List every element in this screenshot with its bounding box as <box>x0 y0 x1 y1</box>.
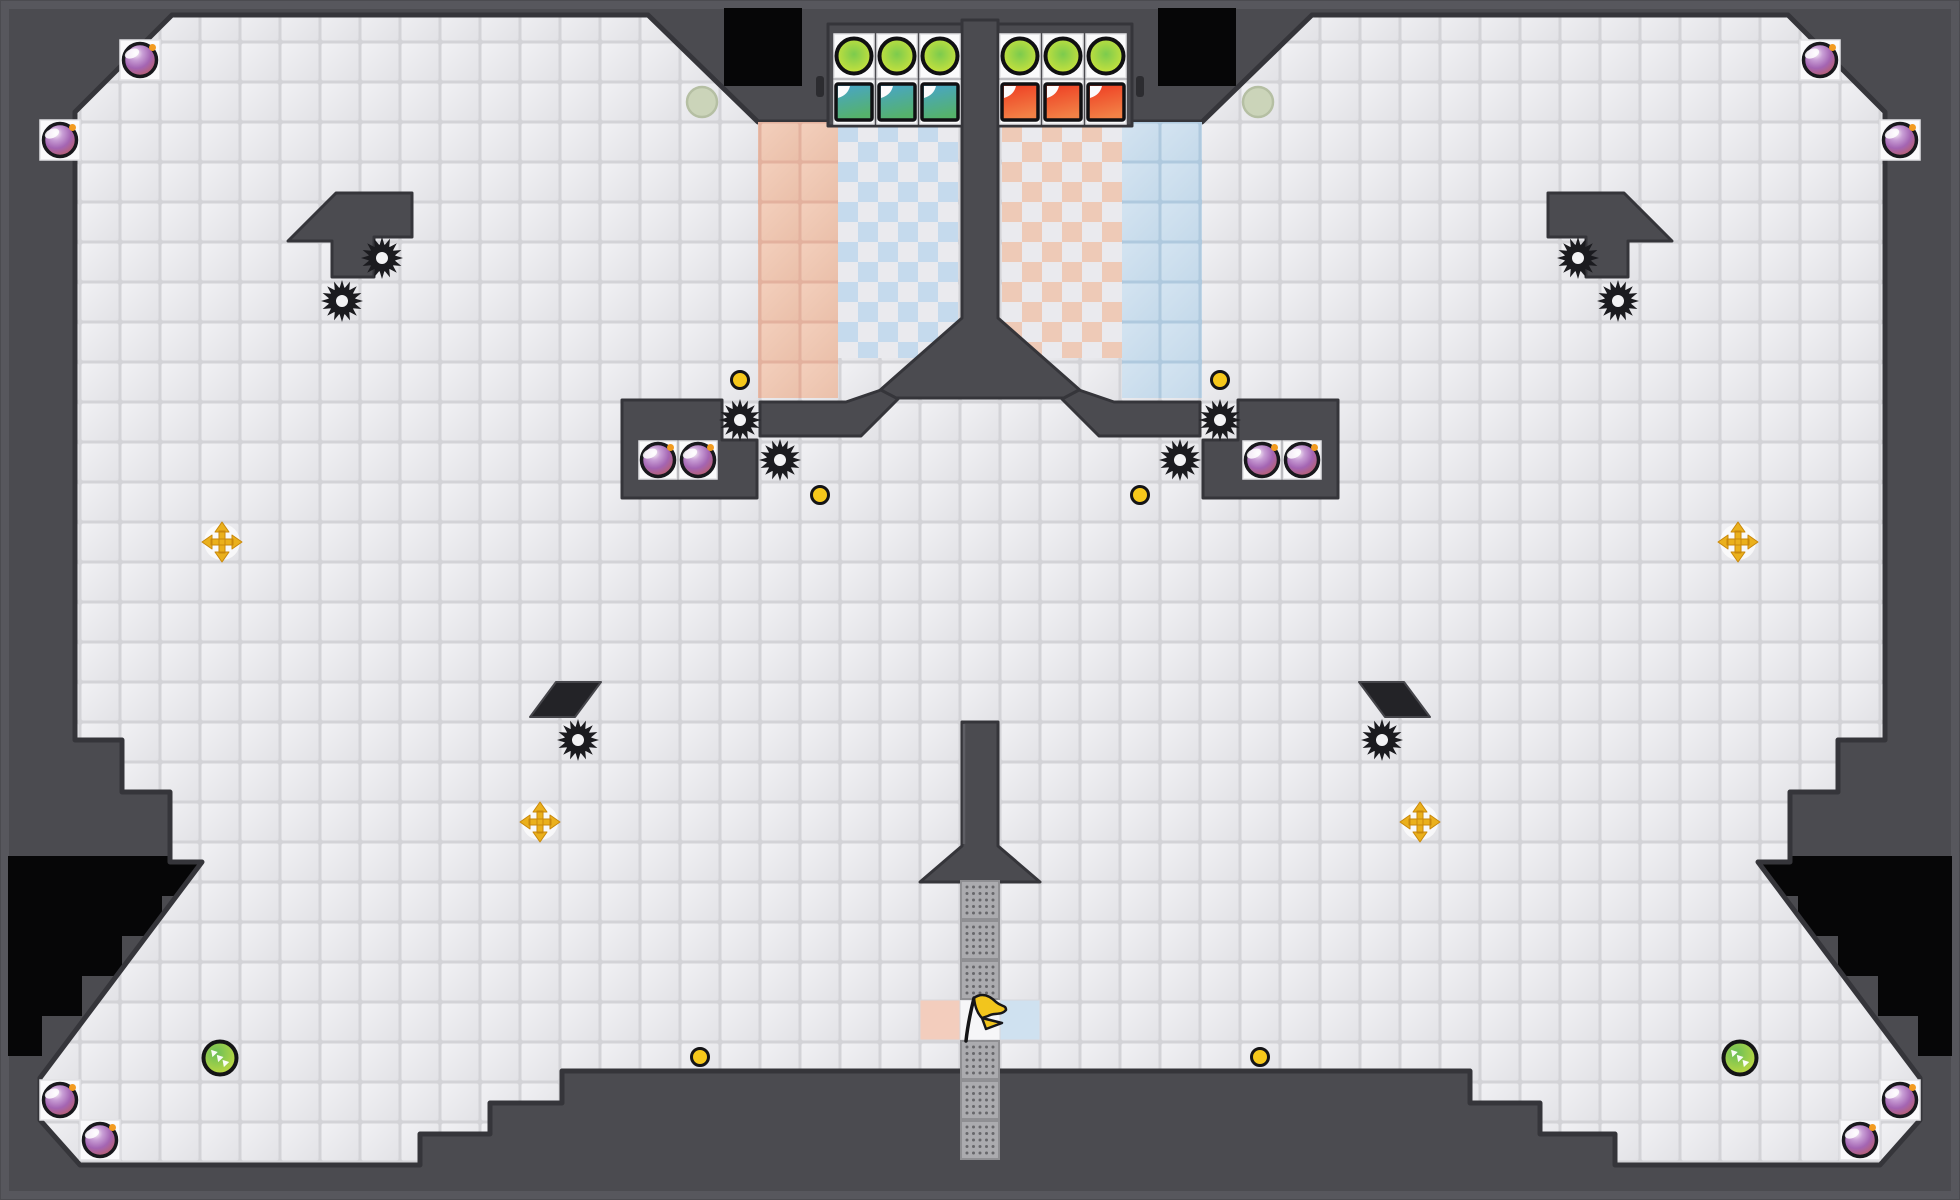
bomb-sprite <box>681 444 714 477</box>
bomb-sprite <box>1803 44 1836 77</box>
bomb-spark <box>1271 444 1278 451</box>
base-button <box>1003 39 1038 74</box>
team-door-red <box>1088 84 1124 120</box>
boost-pad <box>1724 1042 1757 1075</box>
bomb-spark <box>707 444 714 451</box>
bomb-sprite <box>123 44 156 77</box>
team-door-teal <box>922 84 958 120</box>
mesh-block <box>960 1040 1000 1080</box>
door-tick <box>816 76 824 97</box>
mesh-block <box>960 1120 1000 1160</box>
gear-sprite <box>1199 399 1241 441</box>
gear-sprite <box>1159 439 1201 481</box>
bomb-spark <box>1869 1124 1876 1131</box>
team-door-red <box>1002 84 1038 120</box>
bomb-spark <box>1311 444 1318 451</box>
game-viewport <box>0 0 1960 1200</box>
gold-coin <box>812 487 829 504</box>
bomb-sprite <box>43 1084 76 1117</box>
blue-team-tile <box>1000 1000 1040 1040</box>
bomb-spark <box>667 444 674 451</box>
bomb-spark <box>109 1124 116 1131</box>
gear-sprite <box>1557 237 1599 279</box>
void-top-right <box>1158 8 1236 86</box>
boost-pad <box>204 1042 237 1075</box>
bomb-spark <box>69 124 76 131</box>
gear-sprite <box>759 439 801 481</box>
mesh-block <box>960 1080 1000 1120</box>
bomb-sprite <box>1883 1084 1916 1117</box>
bomb-sprite <box>1285 444 1318 477</box>
gear-sprite <box>1361 719 1403 761</box>
zone-peach-solid-left <box>758 122 838 398</box>
base-button <box>1046 39 1081 74</box>
gear-sprite <box>557 719 599 761</box>
inactive-pad <box>687 87 717 117</box>
base-button <box>923 39 958 74</box>
gold-coin <box>1132 487 1149 504</box>
game-canvas[interactable] <box>0 0 1960 1200</box>
bomb-spark <box>1829 44 1836 51</box>
pink-team-tile <box>920 1000 960 1040</box>
bomb-sprite <box>83 1124 116 1157</box>
gear-sprite <box>719 399 761 441</box>
void-top-left <box>724 8 802 86</box>
base-button <box>837 39 872 74</box>
base-button <box>880 39 915 74</box>
gold-coin <box>732 372 749 389</box>
team-door-teal <box>879 84 915 120</box>
bomb-sprite <box>1245 444 1278 477</box>
zone-blue-solid-right <box>1122 122 1202 398</box>
gear-sprite <box>321 280 363 322</box>
inactive-pad <box>1243 87 1273 117</box>
gold-coin <box>1252 1049 1269 1066</box>
bomb-spark <box>1909 1084 1916 1091</box>
gear-sprite <box>361 237 403 279</box>
gold-coin <box>1212 372 1229 389</box>
base-button <box>1089 39 1124 74</box>
bomb-sprite <box>1843 1124 1876 1157</box>
mesh-block <box>960 880 1000 920</box>
zone-checker-blue-left <box>838 122 958 358</box>
bomb-spark <box>1909 124 1916 131</box>
bomb-sprite <box>641 444 674 477</box>
gear-sprite <box>1597 280 1639 322</box>
gold-coin <box>692 1049 709 1066</box>
mesh-block <box>960 920 1000 960</box>
team-door-red <box>1045 84 1081 120</box>
door-tick <box>1136 76 1144 97</box>
zone-checker-peach-right <box>1002 122 1122 358</box>
bomb-sprite <box>1883 124 1916 157</box>
team-door-teal <box>836 84 872 120</box>
bomb-spark <box>149 44 156 51</box>
bomb-sprite <box>43 124 76 157</box>
bomb-spark <box>69 1084 76 1091</box>
